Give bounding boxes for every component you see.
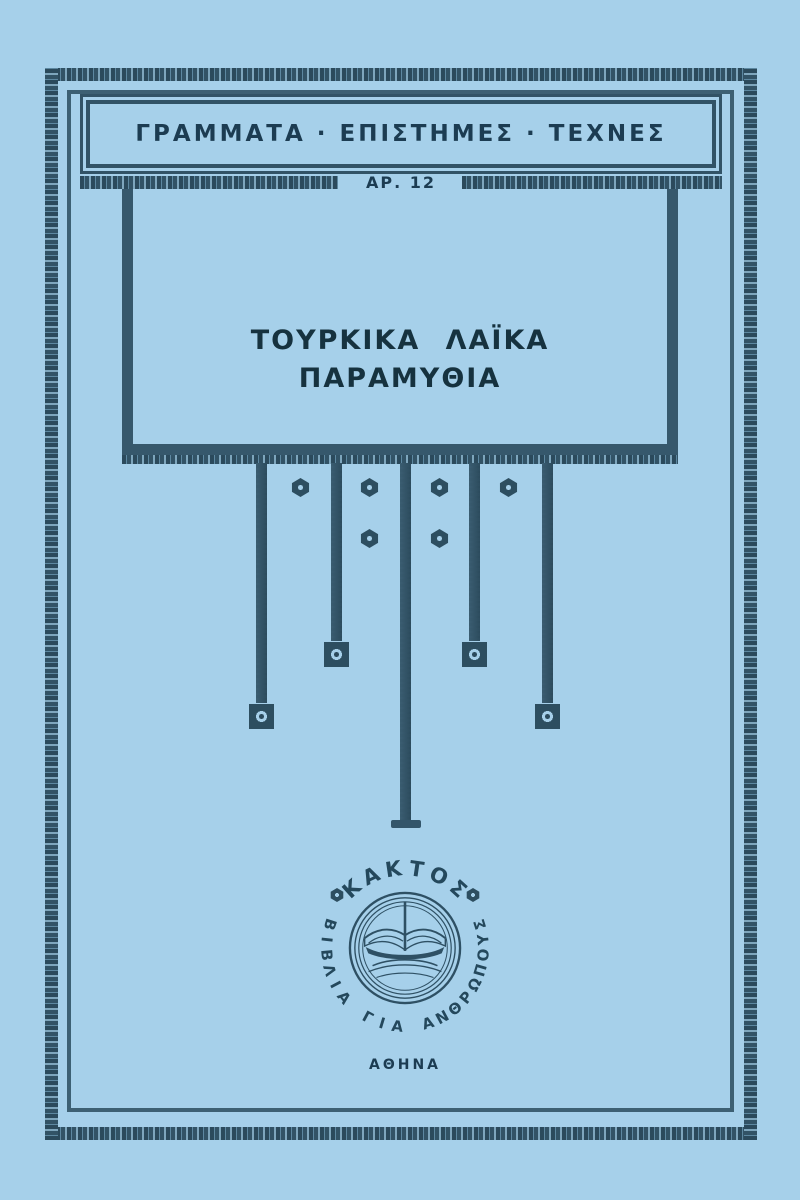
center-bar-cap — [391, 820, 421, 828]
publisher-logo: ΚΑΚΤΟΣ ΒΙΒΛΙΑ ΓΙΑ ΑΝΘΡΩΠΟΥΣ — [295, 838, 515, 1058]
book-title: ΤΟΥΡΚΙΚΑ ΛΑΪΚΑ ΠΑΡΑΜΥΘΙΑ — [133, 322, 667, 398]
book-title-line1: ΤΟΥΡΚΙΚΑ ΛΑΪΚΑ — [133, 322, 667, 360]
outer-frame-bottom — [45, 1127, 757, 1140]
hanging-bar — [331, 463, 342, 641]
square-drop-ornament — [463, 643, 486, 666]
city-label: ΑΘΗΝΑ — [305, 1057, 505, 1073]
hanging-bar — [542, 463, 553, 703]
square-drop-ornament — [325, 643, 348, 666]
square-drop-ornament — [536, 705, 559, 728]
series-banner-text: ΓΡΑΜΜΑΤΑ · ΕΠΙΣΤΗΜΕΣ · ΤΕΧΝΕΣ — [135, 121, 666, 147]
book-cover: ΓΡΑΜΜΑΤΑ · ΕΠΙΣΤΗΜΕΣ · ΤΕΧΝΕΣ ΑΡ. 12 ΤΟΥ… — [0, 0, 800, 1200]
square-drop-ornament — [250, 705, 273, 728]
hanging-bar-center — [400, 463, 411, 822]
series-banner-box: ΓΡΑΜΜΑΤΑ · ΕΠΙΣΤΗΜΕΣ · ΤΕΧΝΕΣ — [80, 94, 722, 174]
hanging-bar — [256, 463, 267, 703]
outer-frame-left — [45, 68, 58, 1140]
series-number-bar-right — [462, 176, 722, 189]
hanging-bar — [469, 463, 480, 641]
logo-rosette-right — [466, 888, 480, 902]
outer-frame-top — [45, 68, 757, 81]
outer-frame-right — [744, 68, 757, 1140]
series-number-bar-left — [80, 176, 338, 189]
open-book-icon — [346, 889, 464, 1007]
book-title-line2: ΠΑΡΑΜΥΘΙΑ — [133, 360, 667, 398]
